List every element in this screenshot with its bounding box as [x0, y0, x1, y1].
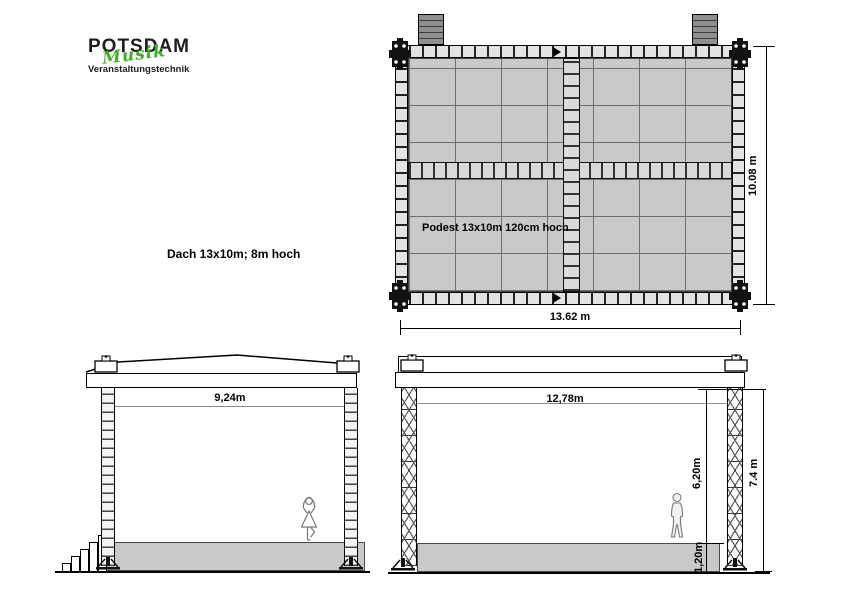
dim-clear-height-line	[706, 389, 707, 543]
truss-arrow-bottom-icon	[553, 293, 561, 303]
logo: POTSDAM Musik Veranstaltungstechnik	[88, 34, 218, 78]
roof-beam	[86, 373, 357, 388]
truss-arrow-top-icon	[553, 47, 561, 57]
tower-base-icon	[94, 557, 122, 571]
corner-tower-icon	[389, 38, 411, 70]
truss-tower-right	[344, 388, 358, 566]
tower-cap-icon	[400, 354, 424, 372]
dim-total-height-line	[763, 389, 764, 572]
tower-base-icon	[389, 558, 417, 572]
roof-edge-end-left	[398, 356, 399, 372]
ground-line	[55, 571, 370, 573]
dim-width-label: 13.62 m	[515, 311, 625, 323]
side-span-line	[115, 406, 344, 407]
dim-width-tick-right	[740, 320, 741, 335]
podest-note: Podest 13x10m 120cm hoch	[422, 222, 569, 234]
dim-depth-line	[766, 47, 767, 305]
front-elevation: 12,78m 6,20m 1,20m 7.4 m	[393, 350, 783, 588]
stair-step	[71, 556, 80, 571]
roof-note: Dach 13x10m; 8m hoch	[167, 247, 300, 261]
drawing-canvas: POTSDAM Musik Veranstaltungstechnik Dach…	[0, 0, 841, 595]
beam-underside-ext-line	[698, 389, 766, 390]
tower-base-icon	[337, 557, 365, 571]
plan-truss-top	[395, 45, 745, 58]
stage-platform	[417, 543, 720, 572]
tower-cap-icon	[336, 355, 360, 373]
corner-tower-icon	[729, 280, 751, 312]
plan-view: Podest 13x10m 120cm hoch	[395, 45, 745, 305]
side-span-label: 9,24m	[185, 392, 275, 404]
dim-depth-tick-top	[753, 46, 775, 47]
truss-tower-left	[401, 388, 417, 566]
tower-cap-icon	[724, 354, 748, 372]
person-figure-icon	[666, 492, 688, 543]
dim-width-tick-left	[400, 320, 401, 335]
front-span-label: 12,78m	[515, 393, 615, 405]
plan-truss-right	[732, 58, 745, 292]
truss-tower-right	[727, 388, 743, 566]
ground-line	[388, 572, 770, 574]
stage-platform	[103, 542, 365, 571]
tower-cap-icon	[94, 355, 118, 373]
dim-podest-height-line	[706, 543, 707, 572]
plan-truss-bottom	[395, 292, 745, 305]
stair-step	[80, 549, 89, 571]
plan-stair-block-left	[418, 14, 444, 45]
dim-depth-label: 10.08 m	[747, 146, 759, 206]
dim-depth-tick-bottom	[753, 304, 775, 305]
roof-curve-icon	[82, 351, 362, 375]
dim-clear-height-label: 6,20m	[691, 438, 703, 508]
dim-width-line	[400, 328, 741, 329]
dancer-figure-icon	[294, 494, 324, 542]
plan-mid-truss-vertical	[563, 58, 580, 292]
stair-step	[62, 563, 71, 571]
dim-total-height-label: 7.4 m	[748, 435, 760, 510]
logo-subtitle: Veranstaltungstechnik	[88, 64, 189, 75]
plan-truss-left	[395, 58, 408, 292]
roof-beam	[395, 372, 745, 388]
plan-stair-block-right	[692, 14, 718, 45]
truss-tower-left	[101, 388, 115, 566]
roof-edge-line	[398, 356, 742, 357]
corner-tower-icon	[389, 280, 411, 312]
side-elevation: 9,24m	[60, 348, 380, 588]
corner-tower-icon	[729, 38, 751, 70]
tower-base-icon	[721, 558, 749, 572]
